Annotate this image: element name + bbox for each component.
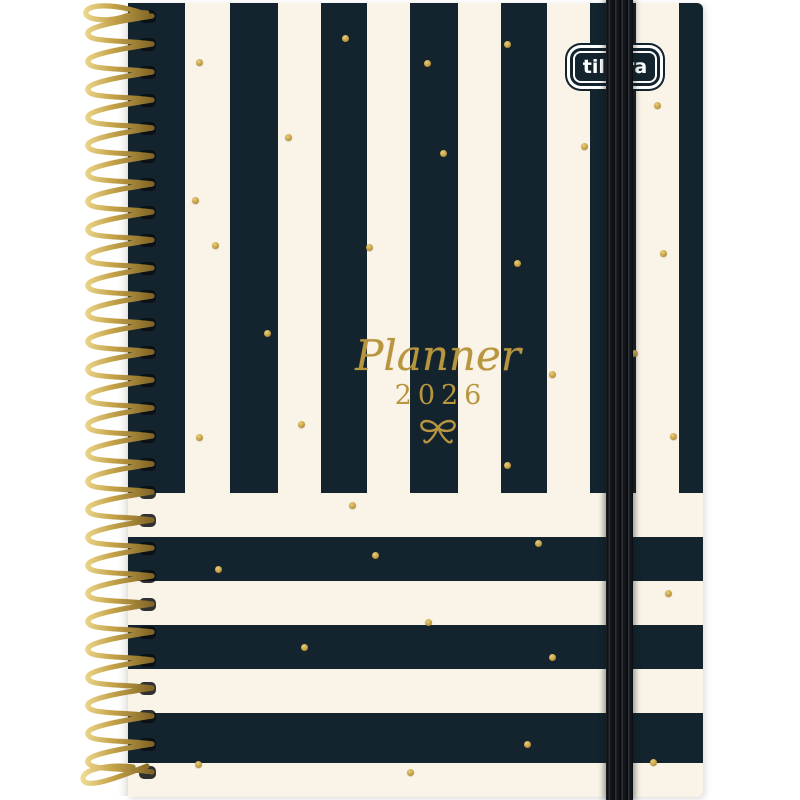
gold-dot [514,260,521,267]
gold-dot [440,150,447,157]
gold-dot [349,502,356,509]
cover-year: 2026 [278,380,598,411]
gold-dot [535,540,542,547]
gold-dot [192,197,199,204]
gold-dot [549,654,556,661]
cover-title-block: Planner 2026 [278,333,598,452]
gold-dot [366,244,373,251]
gold-dot [342,35,349,42]
coil-wire [83,6,152,783]
gold-dot [212,242,219,249]
gold-dot [670,433,677,440]
gold-dot [581,143,588,150]
gold-dot [195,761,202,768]
elastic-band [606,0,633,800]
gold-dot [650,759,657,766]
gold-dot [372,552,379,559]
gold-dot [425,619,432,626]
gold-dot [424,60,431,67]
gold-dot [407,769,414,776]
gold-dot [665,590,672,597]
dark-vertical-stripe [230,3,278,493]
gold-dot [660,250,667,257]
cover-title: Planner [278,333,598,379]
gold-dot [215,566,222,573]
gold-dot [504,41,511,48]
gold-dot [285,134,292,141]
gold-dot [301,644,308,651]
dark-vertical-stripe [679,3,703,493]
product-photo-stage: tilibra Planner 2026 [0,0,800,800]
gold-dot [196,59,203,66]
gold-dot [524,741,531,748]
gold-dot [654,102,661,109]
coil-loop [83,766,147,783]
spiral-binding [55,0,175,800]
gold-dot [196,434,203,441]
bow-icon [278,414,598,452]
gold-dot [264,330,271,337]
gold-dot [504,462,511,469]
